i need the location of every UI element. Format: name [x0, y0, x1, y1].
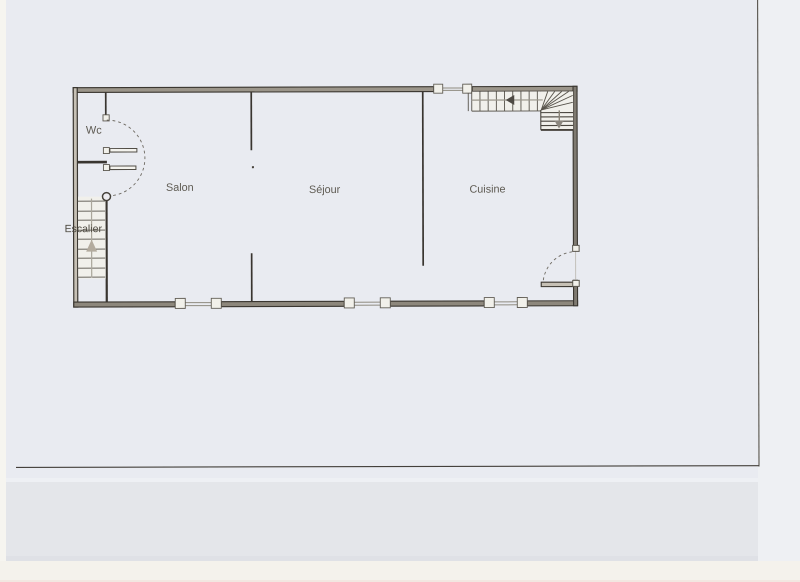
- svg-text:Cuisine: Cuisine: [469, 184, 505, 196]
- svg-text:Escalier: Escalier: [65, 223, 103, 235]
- svg-text:Salon: Salon: [166, 182, 194, 194]
- svg-text:Wc: Wc: [86, 125, 102, 137]
- svg-text:Séjour: Séjour: [309, 184, 341, 196]
